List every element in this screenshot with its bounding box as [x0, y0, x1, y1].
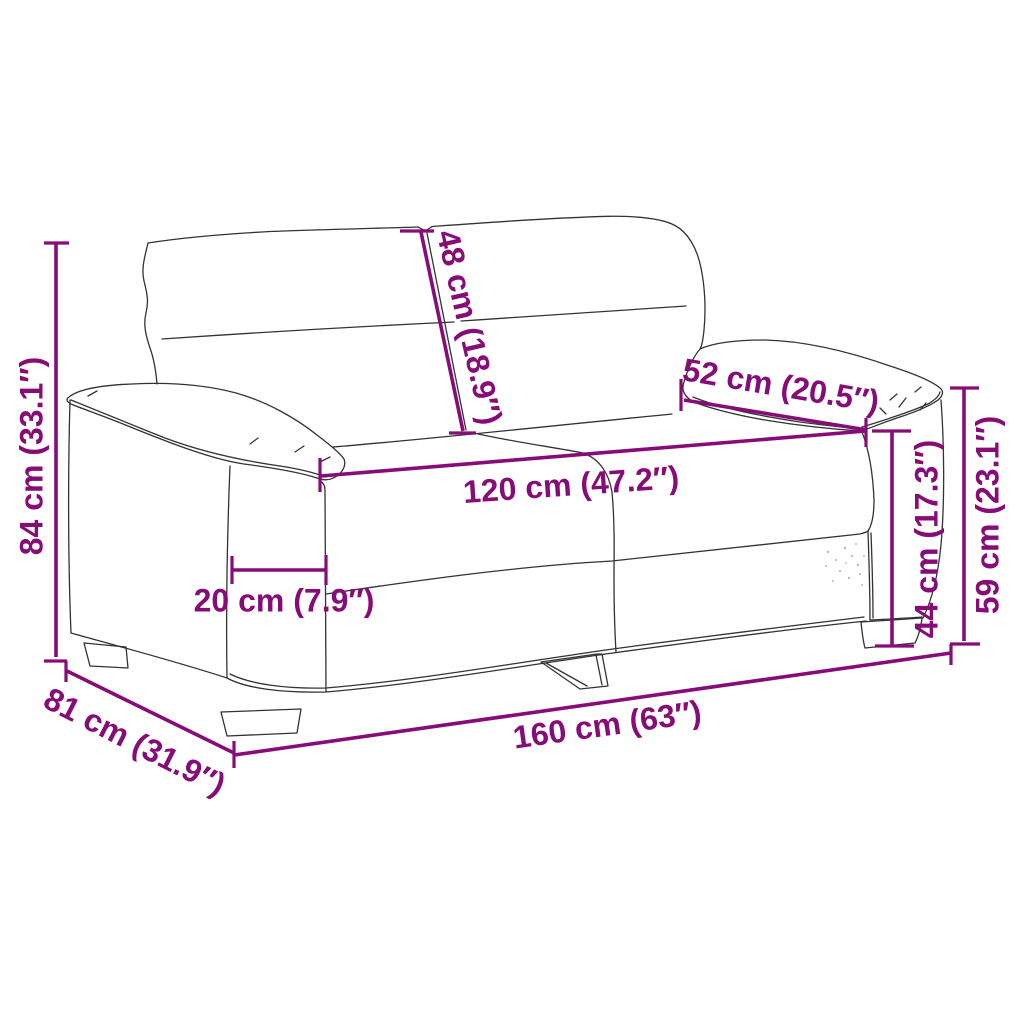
- svg-text:20 cm (7.9″): 20 cm (7.9″): [194, 583, 375, 619]
- svg-text:59 cm (23.1″): 59 cm (23.1″): [970, 416, 1006, 615]
- svg-text:44 cm (17.3″): 44 cm (17.3″): [909, 440, 945, 639]
- svg-text:84 cm (33.1″): 84 cm (33.1″): [14, 357, 50, 556]
